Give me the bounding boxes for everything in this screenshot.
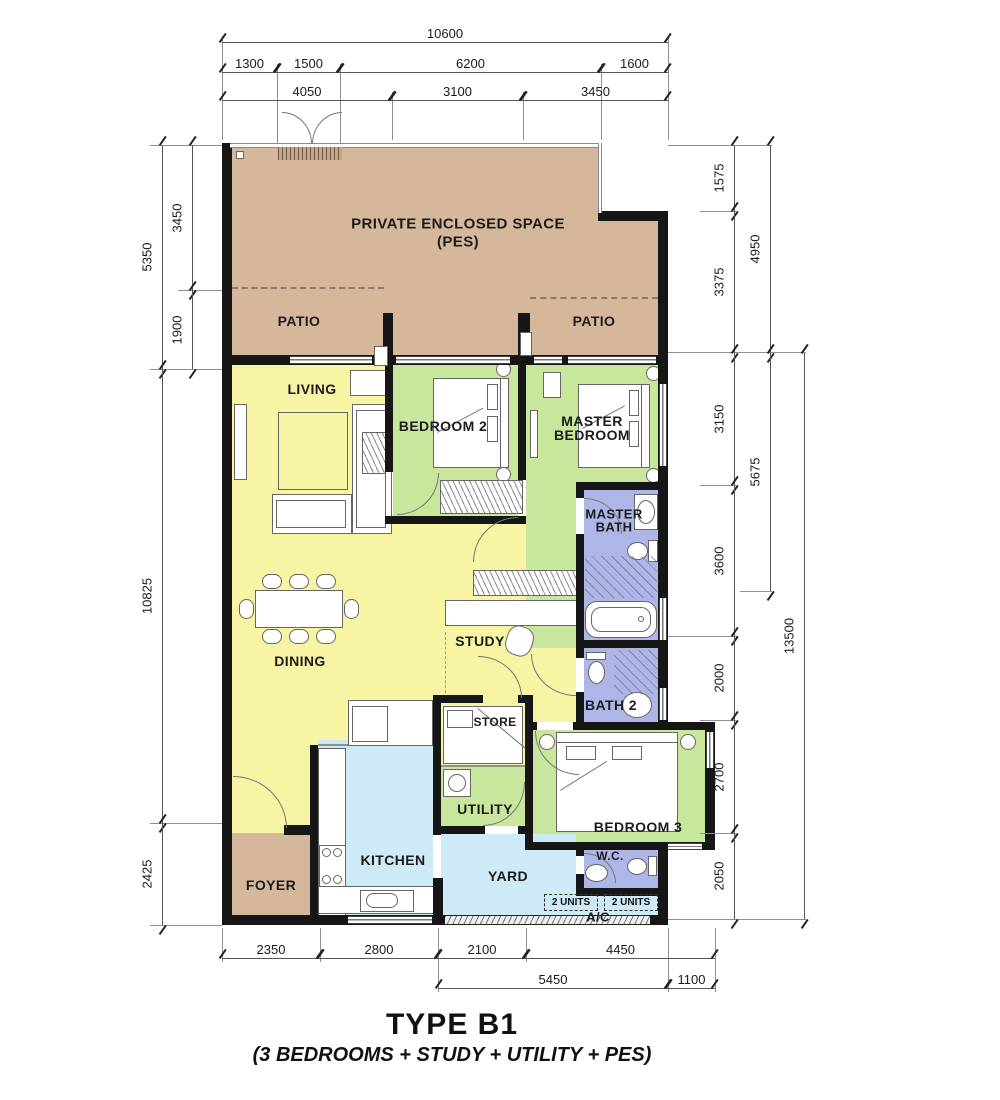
ext	[150, 925, 222, 926]
dim-top-1600: 1600	[601, 72, 668, 73]
ac-units-label: 2 UNITS	[552, 897, 590, 908]
label-bedroom2: BEDROOM 2	[399, 418, 487, 434]
pillow	[487, 384, 498, 410]
burner	[322, 848, 331, 857]
dim-right-3600: 3600	[734, 485, 735, 636]
yard-louvre	[445, 915, 650, 925]
plan-subtitle: (3 BEDROOMS + STUDY + UTILITY + PES)	[253, 1044, 652, 1067]
window-bedroom3-bottom	[668, 843, 702, 850]
chair	[289, 574, 309, 589]
sofa-horizontal-seat	[276, 500, 346, 528]
rug	[278, 412, 348, 490]
window-patio-door	[534, 356, 562, 364]
ext	[668, 36, 669, 140]
shower-bath2	[614, 650, 658, 694]
door-jamb	[374, 346, 388, 366]
wall-bath2-left-b	[576, 692, 584, 722]
dim-bottom-2800: 2800	[320, 958, 438, 959]
label-bedroom3: BEDROOM 3	[594, 819, 682, 835]
dim-left-3450: 3450	[192, 145, 193, 290]
toilet-tank	[648, 856, 657, 876]
wall-foyer-top	[284, 825, 318, 835]
dim-right-5675: 5675	[770, 353, 771, 591]
label-yard: YARD	[488, 868, 528, 884]
wall-bath-divider	[576, 640, 668, 648]
label-dining: DINING	[274, 653, 325, 669]
ext	[526, 928, 527, 962]
dim-left-2425: 2425	[162, 823, 163, 925]
window-bathtub	[659, 598, 667, 640]
kitchen-sink-basin	[366, 893, 398, 908]
label-patio-left: PATIO	[278, 313, 321, 329]
dim-right-2700: 2700	[734, 720, 735, 833]
window-bedroom2-slider	[396, 356, 510, 364]
label-ac: A/C	[586, 910, 610, 925]
dining-table	[255, 590, 343, 628]
ext	[320, 928, 321, 962]
wall-kitchen-yard-stub	[433, 878, 443, 915]
wall-right-upper	[658, 211, 668, 730]
burner	[322, 875, 331, 884]
wall-bedroom2-master	[518, 360, 526, 480]
window-master-right	[659, 384, 667, 466]
window-living-slider	[290, 356, 372, 364]
ac-units-box-2: 2 UNITS	[604, 894, 658, 911]
plant	[362, 432, 386, 474]
dim-bottom-1100: 1100	[668, 988, 715, 989]
bathtub-drain	[638, 616, 644, 622]
dim-right-3150: 3150	[734, 353, 735, 485]
wall-masterbath-left-a	[576, 482, 584, 498]
label-masterbath-line2: BATH	[596, 520, 633, 535]
ext	[740, 591, 772, 592]
ext	[601, 64, 602, 140]
bed-master-headboard	[641, 384, 650, 468]
ext	[150, 823, 222, 824]
dim-left-10825: 10825	[162, 369, 163, 823]
chair	[316, 629, 336, 644]
ext	[277, 64, 278, 144]
dim-top-1500: 1500	[277, 72, 340, 73]
chair	[344, 599, 359, 619]
dim-top-3100: 3100	[392, 100, 523, 101]
ext	[150, 369, 222, 370]
dim-right-2000: 2000	[734, 636, 735, 720]
dim-right-1575: 1575	[734, 145, 735, 211]
dim-left-5350: 5350	[162, 145, 163, 369]
ac-units-label: 2 UNITS	[612, 897, 650, 908]
chair	[262, 629, 282, 644]
label-study: STUDY	[455, 633, 504, 649]
wardrobe-corridor	[473, 570, 580, 596]
ext	[222, 928, 223, 962]
label-master-line2: BEDROOM	[554, 427, 630, 443]
ext	[222, 36, 223, 140]
chair	[316, 574, 336, 589]
gate-arc-right	[312, 112, 342, 144]
dim-top-10600: 10600	[222, 42, 668, 43]
pes-patio-dashed-right	[530, 297, 658, 299]
dim-bottom-4450: 4450	[526, 958, 715, 959]
room-foyer-fill	[232, 833, 310, 915]
lamp	[680, 734, 696, 750]
floor-plan: PRIVATE ENCLOSED SPACE (PES) PATIO PATIO…	[0, 0, 1000, 1100]
wall-store-left	[433, 695, 441, 835]
gate-arc-left	[282, 112, 312, 144]
label-utility: UTILITY	[457, 801, 513, 817]
pes-patio-dashed-left	[232, 287, 384, 289]
wall-kitchen-left	[310, 745, 318, 925]
dim-top-6200: 6200	[340, 72, 601, 73]
burner	[333, 875, 342, 884]
label-patio-right: PATIO	[573, 313, 616, 329]
pillow	[612, 746, 642, 760]
pes-fence-right	[598, 143, 602, 213]
gate-threshold	[278, 147, 342, 160]
pillow	[487, 416, 498, 442]
ext	[668, 145, 772, 146]
mirror	[530, 410, 538, 458]
dim-right-4950: 4950	[770, 145, 771, 353]
bed2-headboard	[500, 378, 509, 468]
shower-masterbath	[585, 556, 657, 598]
wall-bedroom3-top-b	[573, 722, 715, 730]
dim-right-13500: 13500	[804, 353, 805, 919]
window-bath2	[659, 688, 667, 720]
wall-masterbath-top	[584, 482, 668, 490]
door-jamb	[520, 332, 532, 356]
store-pillow	[447, 710, 473, 728]
dim-right-3375: 3375	[734, 211, 735, 353]
ext	[178, 290, 222, 291]
dim-bottom-5450: 5450	[438, 988, 668, 989]
pes-notch	[598, 140, 668, 211]
wall-utility-bottom-b	[518, 826, 533, 834]
dim-top-3450: 3450	[523, 100, 668, 101]
study-dashed-divider	[445, 632, 446, 698]
wall-left	[222, 143, 232, 925]
window-master-slider	[568, 356, 656, 364]
ext	[340, 64, 341, 144]
plan-title: TYPE B1	[386, 1008, 518, 1042]
label-wc: W.C.	[596, 849, 624, 863]
dim-bottom-2350: 2350	[222, 958, 320, 959]
washing-machine-drum	[448, 774, 466, 792]
dim-left-1900: 1900	[192, 290, 193, 369]
dim-bottom-2100: 2100	[438, 958, 526, 959]
toilet-bowl	[627, 858, 647, 875]
pillow	[629, 390, 639, 416]
wall-notch-top	[598, 211, 668, 221]
wall-bath2-left-a	[576, 648, 584, 658]
toilet-tank	[586, 652, 606, 660]
ext	[668, 636, 738, 637]
dim-top-1300: 1300	[222, 72, 277, 73]
label-bath2: BATH 2	[585, 697, 637, 713]
wall-wc-left-a	[576, 850, 584, 856]
ext	[150, 145, 222, 146]
label-pes-line2: (PES)	[437, 234, 479, 251]
label-store: STORE	[473, 715, 516, 729]
chair	[262, 574, 282, 589]
downpipe	[236, 151, 244, 159]
label-kitchen: KITCHEN	[360, 852, 425, 868]
tv-console	[234, 404, 247, 480]
dim-top-4050: 4050	[222, 100, 392, 101]
shelf	[350, 370, 390, 396]
wardrobe-bedroom2	[440, 480, 523, 514]
chair	[239, 599, 254, 619]
burner	[333, 848, 342, 857]
wall-masterbath-left-b	[576, 534, 584, 648]
ac-units-box-1: 2 UNITS	[544, 894, 598, 911]
store-utility-divider	[441, 765, 525, 767]
label-foyer: FOYER	[246, 877, 296, 893]
wall-bedroom2-left	[385, 360, 393, 472]
pillow	[629, 421, 639, 447]
study-desk	[445, 600, 578, 626]
dresser	[543, 372, 561, 398]
label-living: LIVING	[287, 381, 336, 397]
toilet-bowl	[588, 661, 605, 684]
dim-right-2050: 2050	[734, 833, 735, 919]
label-pes-line1: PRIVATE ENCLOSED SPACE	[351, 216, 565, 233]
window-kitchen-bottom	[348, 916, 432, 924]
kitchen-dining-line	[318, 744, 348, 746]
wall-utility-bottom-a	[433, 826, 485, 834]
chair	[289, 629, 309, 644]
fridge	[352, 706, 388, 742]
wall-store-top-a	[433, 695, 483, 703]
